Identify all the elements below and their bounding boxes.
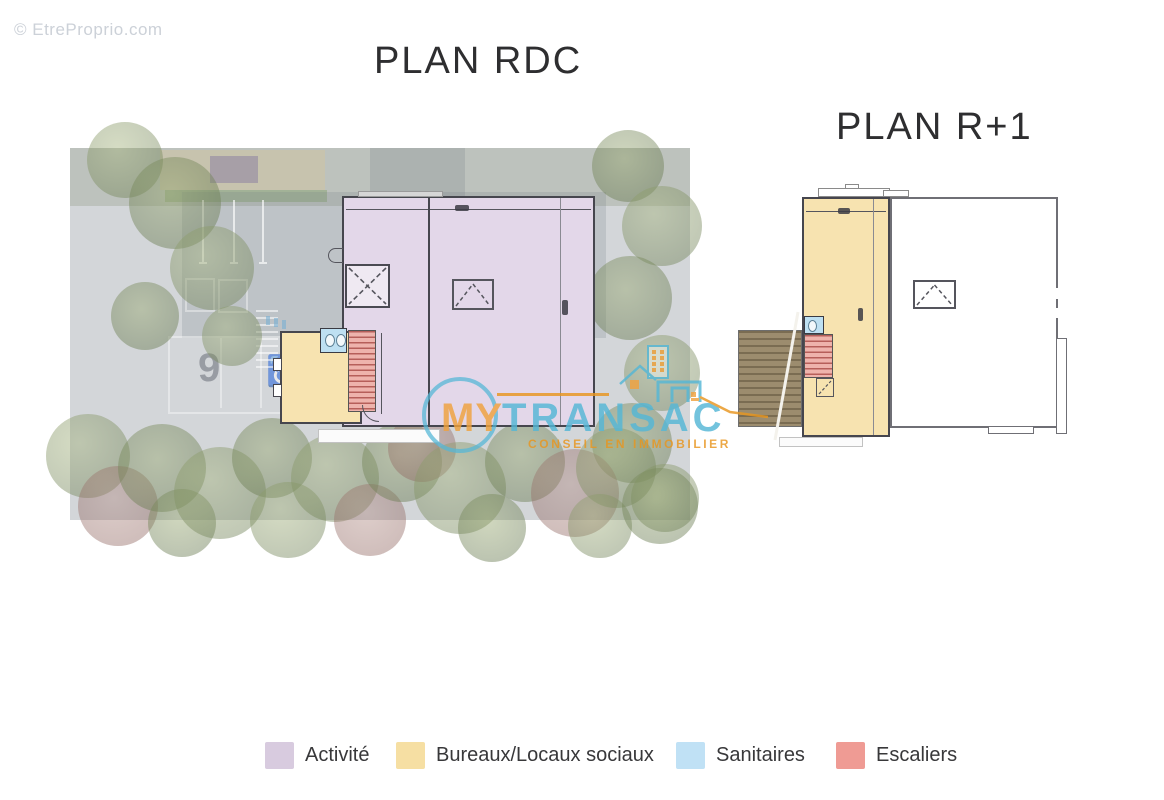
void-diagonal-icon xyxy=(817,379,833,396)
tree xyxy=(624,335,700,411)
tree xyxy=(622,186,702,266)
r1-walkway xyxy=(779,437,863,447)
r1-parapet xyxy=(818,188,890,197)
dimension-label xyxy=(858,308,863,321)
site-watermark: © EtreProprio.com xyxy=(14,20,163,40)
hatch-triangle-icon xyxy=(454,281,492,308)
toilet-fixture-icon xyxy=(336,334,346,347)
r1-ramp-edge xyxy=(768,308,804,444)
r1-skylight xyxy=(913,280,956,309)
tree xyxy=(622,468,698,544)
title-plan-r1: PLAN R+1 xyxy=(836,106,1033,149)
legend-item-activite: Activité xyxy=(265,742,369,769)
dimension-label xyxy=(455,205,469,211)
r1-parapet-notch xyxy=(845,184,859,189)
legend-label-bureaux: Bureaux/Locaux sociaux xyxy=(436,744,654,767)
rdc-roof-hatch xyxy=(452,279,494,310)
rdc-interior-wall xyxy=(428,198,430,425)
floor-plan-page: © EtreProprio.com PLAN RDC PLAN R+1 9 ♿ xyxy=(0,0,1164,800)
rdc-door-jamb xyxy=(273,384,282,397)
r1-interior-line xyxy=(873,199,874,435)
legend-label-sanitaires: Sanitaires xyxy=(716,744,805,767)
rdc-entrance-canopy xyxy=(358,191,443,197)
rdc-door-jamb xyxy=(273,358,282,371)
toilet-fixture-icon xyxy=(808,320,817,332)
dimension-label xyxy=(562,300,568,315)
dimension-label xyxy=(838,208,850,214)
legend-swatch-activite xyxy=(265,742,294,769)
skylight-triangle-icon xyxy=(915,282,954,307)
tree xyxy=(588,256,672,340)
tree xyxy=(458,494,526,562)
r1-offset-wall xyxy=(1056,338,1067,434)
r1-sanitary-room xyxy=(804,316,824,334)
legend-label-activite: Activité xyxy=(305,744,369,767)
legend-swatch-escaliers xyxy=(836,742,865,769)
r1-bottom-step xyxy=(988,426,1034,434)
rdc-entrance-walkway xyxy=(318,429,440,443)
tree xyxy=(170,226,254,310)
r1-hall-void xyxy=(890,197,1058,428)
legend-item-bureaux: Bureaux/Locaux sociaux xyxy=(396,742,654,769)
rdc-joint-line xyxy=(560,198,561,425)
r1-window-gap xyxy=(1053,288,1058,299)
tree xyxy=(111,282,179,350)
stair-direction-line xyxy=(381,333,382,414)
tree xyxy=(202,306,262,366)
legend-item-sanitaires: Sanitaires xyxy=(676,742,805,769)
title-plan-rdc: PLAN RDC xyxy=(374,40,582,83)
r1-window-gap xyxy=(1053,308,1058,318)
sectional-door-x-icon xyxy=(347,266,388,306)
rdc-sectional-door xyxy=(345,264,390,308)
toilet-fixture-icon xyxy=(325,334,335,347)
rdc-sanitary-room xyxy=(320,328,347,353)
legend-swatch-sanitaires xyxy=(676,742,705,769)
r1-stair-void xyxy=(816,378,834,397)
legend-label-escaliers: Escaliers xyxy=(876,744,957,767)
rdc-side-door-arc xyxy=(328,248,343,263)
rdc-staircase xyxy=(348,330,376,412)
legend-swatch-bureaux xyxy=(396,742,425,769)
r1-staircase xyxy=(804,334,833,378)
r1-parapet xyxy=(883,190,909,197)
legend-item-escaliers: Escaliers xyxy=(836,742,957,769)
